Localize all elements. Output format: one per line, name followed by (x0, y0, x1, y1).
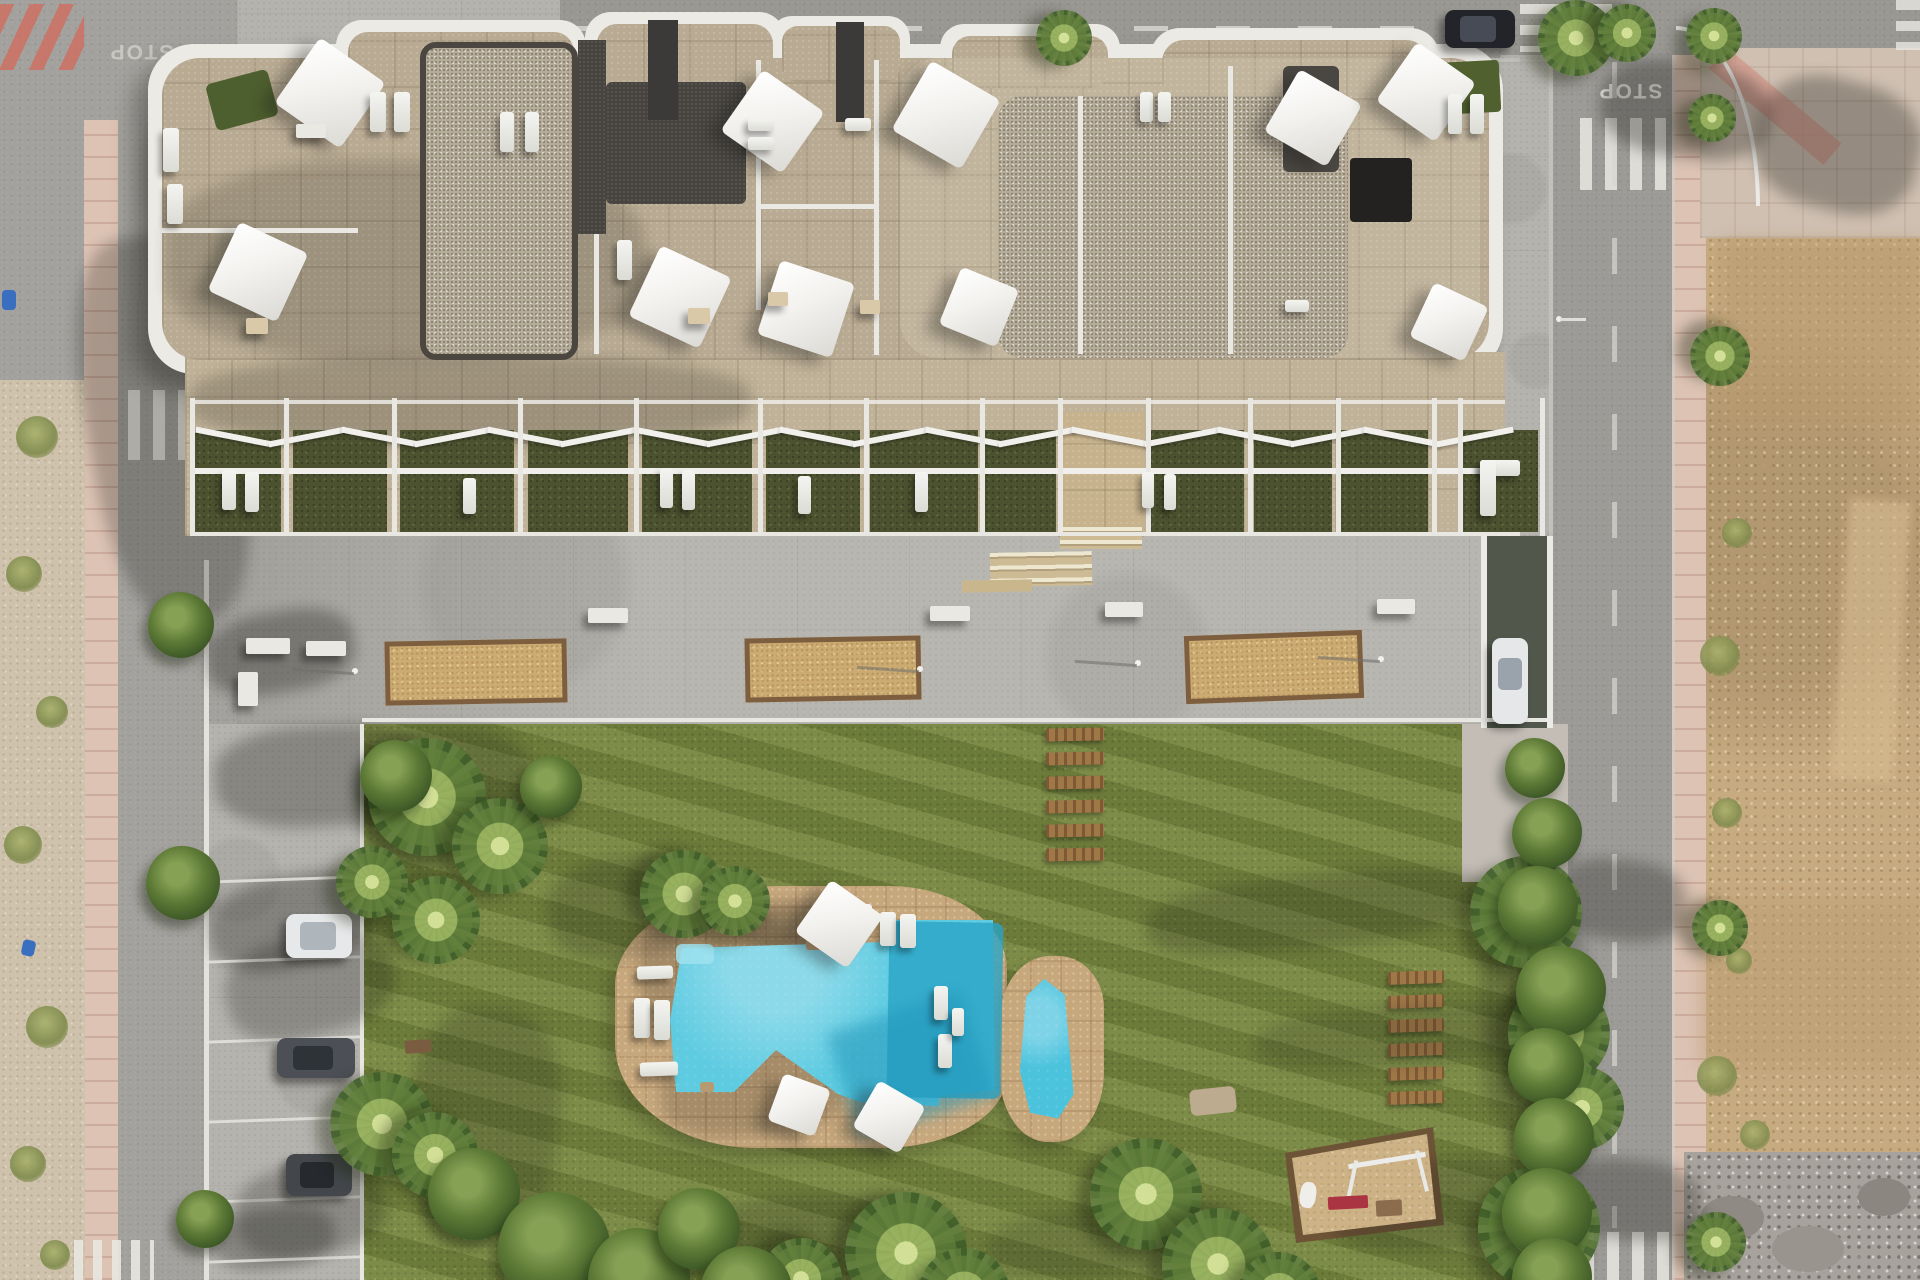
roof-lounger-7 (167, 184, 183, 224)
terrace-post-4 (518, 398, 523, 536)
plaza-bench-7 (1377, 599, 1415, 614)
pool-lounger-6 (900, 914, 916, 948)
car-gray-parked-2-glass (300, 1162, 334, 1188)
terrace-post-5 (634, 398, 639, 536)
roof-divider-h2 (756, 204, 876, 209)
lamp-arm-right-1 (1560, 318, 1586, 321)
tuft-sand-2 (6, 556, 42, 592)
terrace-lounger-4 (660, 468, 673, 508)
roof-divider-v1 (594, 234, 599, 354)
play-box-wood (1376, 1199, 1403, 1216)
terrace-lawn-4 (528, 430, 628, 532)
shrub-hedge-east-2 (1512, 798, 1582, 868)
roof-lounger-1 (370, 92, 386, 132)
tuft-dirt-3 (1700, 636, 1740, 676)
pergola-beam-top (190, 400, 1505, 404)
roof-lounger-12 (1158, 92, 1171, 122)
roof-table-4 (296, 124, 326, 138)
lane-dashes-right (1612, 62, 1617, 1228)
roof-lounger-9 (748, 137, 774, 150)
terrace-post-9 (1058, 398, 1063, 536)
roof-tiles-bump-b (597, 24, 773, 88)
roof-gravel-main (420, 42, 578, 360)
terrace-post-2 (284, 398, 289, 536)
pool-bench-small-pool (952, 1008, 964, 1036)
roof-divider-v4 (1078, 96, 1083, 354)
plaza-bench-2 (306, 641, 346, 656)
tuft-dirt-5 (1697, 1056, 1737, 1096)
tuft-sand-4 (4, 826, 42, 864)
shrub-hedge-east-1 (1505, 738, 1565, 798)
shrub-hedge-east-5 (1508, 1028, 1584, 1104)
shrub-hedge-east-3 (1498, 866, 1578, 946)
terrace-lawn-2 (293, 430, 387, 532)
shrub-hedge-east-6 (1514, 1098, 1594, 1178)
entrance-steps (1060, 527, 1142, 549)
plaza-bench-6 (1105, 602, 1143, 617)
petanque-court-east (1184, 630, 1364, 704)
shrub-garden-1 (360, 740, 432, 812)
terrace-lounger-2 (245, 472, 259, 512)
roof-lounger-13 (1448, 94, 1462, 134)
roof-lounger-10 (845, 118, 871, 131)
roof-lounger-14 (1470, 94, 1484, 134)
tuft-sand-1 (16, 416, 58, 458)
dirt-wash-1 (1720, 240, 1920, 430)
terrace-lounger-3 (463, 478, 476, 514)
pergola-beam-bottom (190, 468, 1505, 474)
tuft-dirt-4 (1712, 798, 1742, 828)
tuft-dirt-7 (1740, 1120, 1770, 1150)
steppers-mid-5 (1046, 823, 1104, 837)
terrace-post-12 (1336, 398, 1341, 536)
garden-fence-top (362, 718, 1547, 722)
roof-table-1 (688, 308, 710, 324)
curb-right-road-e (1672, 55, 1675, 1280)
terrace-post-7 (864, 398, 869, 536)
pool-lounger-5 (880, 912, 896, 946)
terrace-post-14 (1458, 398, 1463, 536)
roof-lounger-5 (617, 240, 632, 280)
terrace-lounger-7 (915, 472, 928, 512)
roof-stairwell-2 (836, 22, 864, 122)
roof-gravel-dark-strip (578, 40, 606, 234)
steppers-mid-4 (1046, 799, 1104, 813)
plaza-bench-5 (930, 606, 970, 621)
terrace-post-11 (1248, 398, 1253, 536)
pool-lounger-7 (934, 986, 948, 1020)
roof-lounger-3 (500, 112, 514, 152)
pool-lounger-4 (640, 1061, 678, 1076)
terrace-post-13 (1432, 398, 1437, 536)
roof-divider-v5 (1228, 66, 1233, 354)
roof-stairwell-1 (648, 20, 678, 120)
terrace-post-10 (1146, 398, 1151, 536)
tuft-sand-3 (36, 696, 68, 728)
rubble-mound-2 (1772, 1226, 1844, 1272)
steppers-mid-2 (1046, 751, 1104, 765)
pool-lounger-1 (637, 965, 673, 979)
steppers-east-1 (1388, 970, 1444, 985)
terrace-lawn-12 (1462, 430, 1538, 532)
terrace-lawn-11 (1340, 430, 1428, 532)
crosswalk-left-bottom (74, 1240, 154, 1280)
terrace-lounger-5 (682, 470, 695, 510)
plaza-bench-4 (588, 608, 628, 623)
pool-lounger-3 (654, 1000, 670, 1040)
play-bench-red (1328, 1195, 1369, 1210)
tree-sidewalk-left-1 (148, 592, 214, 658)
roof-lounger-11 (1140, 92, 1153, 122)
terrace-lawn-5 (642, 430, 752, 532)
terrace-post-15 (1540, 398, 1545, 536)
garden-bench-brown (405, 1039, 432, 1054)
roof-lounger-8 (748, 118, 774, 131)
roof-table-2 (768, 292, 788, 306)
ramp-wall-west (1481, 536, 1487, 728)
deck-table-2 (700, 1082, 714, 1092)
plaza-bench-3 (238, 672, 258, 706)
pool-lounger-8 (938, 1034, 952, 1068)
tuft-sand-6 (10, 1146, 46, 1182)
roof-lounger-6 (163, 128, 179, 172)
entrance-step-low (962, 579, 1032, 592)
aerial-render-scene: STOPSTOP (0, 0, 1920, 1280)
car-white-driveway-glass (1498, 658, 1522, 690)
shrub-garden-2 (520, 756, 582, 818)
terrace-post-6 (758, 398, 763, 536)
pool-lounger-2 (634, 998, 650, 1038)
tree-sidewalk-left-2 (146, 846, 220, 920)
terrace-sofa-l2 (1480, 460, 1496, 516)
rubble-mound-3 (1858, 1178, 1910, 1216)
steppers-mid-3 (1046, 775, 1104, 789)
roof-lounger-2 (394, 92, 410, 132)
pool-steps-corner (676, 944, 714, 964)
terrace-lounger-6 (798, 476, 811, 514)
terrace-post-1 (190, 398, 195, 536)
car-black-street-glass (1460, 16, 1496, 42)
steppers-mid-6 (1046, 847, 1104, 861)
trash-bag-blue-1 (2, 290, 16, 310)
terrace-lounger-9 (1164, 474, 1176, 510)
ramp-wall-east (1547, 536, 1553, 728)
steppers-east-6 (1388, 1090, 1444, 1105)
terrace-lounger-1 (222, 470, 236, 510)
roof-table-3 (860, 300, 880, 314)
petanque-court-west (384, 638, 567, 705)
crosswalk-pink-tl (0, 4, 84, 70)
crosswalk-top-far (1896, 0, 1920, 50)
tuft-sand-5 (26, 1006, 68, 1048)
terrace-lawn-9 (1148, 430, 1244, 532)
car-gray-parked-1-glass (293, 1046, 333, 1070)
terrace-fence-bottom (190, 532, 1520, 536)
car-white-parked-glass (300, 922, 336, 950)
garden-stone-pad (1189, 1086, 1237, 1117)
roof-lounger-4 (525, 112, 539, 152)
roof-lounger-15 (1285, 300, 1309, 312)
shrub-hedge-east-4 (1516, 946, 1606, 1036)
entry-canopy-dark-ne (1350, 158, 1412, 222)
roof-table-5 (246, 318, 268, 334)
terrace-lounger-8 (1142, 472, 1154, 508)
terrace-post-8 (980, 398, 985, 536)
steppers-east-5 (1388, 1066, 1444, 1081)
plaza-bench-1 (246, 638, 290, 654)
terrace-post-3 (392, 398, 397, 536)
steppers-mid-1 (1046, 727, 1104, 741)
tuft-sand-7 (40, 1240, 70, 1270)
tree-sidewalk-left-3 (176, 1190, 234, 1248)
tuft-dirt-2 (1722, 518, 1752, 548)
